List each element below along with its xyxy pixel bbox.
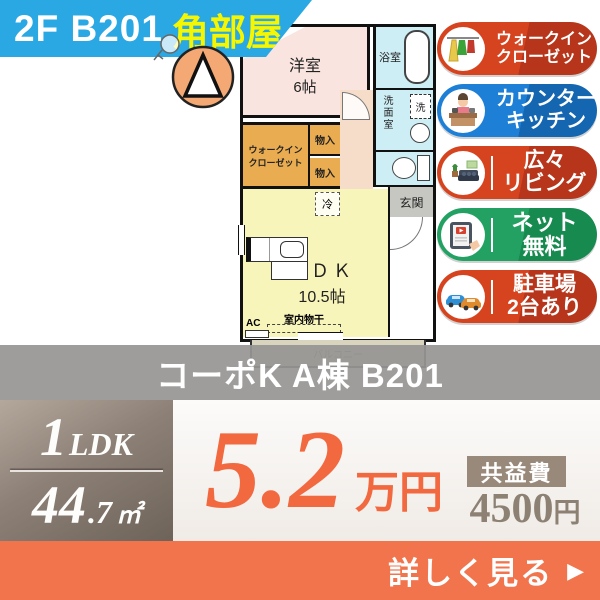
layout-count: 1 (40, 410, 67, 464)
rent-unit: 万円 (355, 471, 443, 515)
area-dec: .7 (88, 496, 112, 528)
badge-divider (491, 280, 493, 314)
free-internet-icon (441, 213, 485, 257)
badge-line1: ネット (498, 211, 591, 235)
badge-line2: 無料 (498, 235, 591, 259)
area-int: 44 (32, 478, 86, 532)
kitchen-counter-lower (271, 262, 308, 280)
details-button-label: 詳しく見る (388, 548, 553, 593)
badge-divider (491, 218, 493, 252)
counter-kitchen-icon (441, 89, 485, 133)
badge-spacious-living: 広々 リビング (437, 146, 597, 199)
fee-label-badge: 共益費 (467, 456, 566, 487)
layout-area-box: 1 LDK 44 .7 ㎡ (0, 400, 173, 541)
layout-type: LDK (69, 428, 133, 460)
wic-label-line2: クローゼット (248, 156, 302, 169)
listing-card: 2F B201 角部屋 洋室 6帖 浴室 洗面室 洗 (0, 0, 600, 600)
sink-icon (410, 123, 430, 143)
ldk-size: 10.5帖 (289, 283, 355, 307)
bathtub-icon (404, 30, 430, 84)
summary-strip: 1 LDK 44 .7 ㎡ 5.2 万円 共益費 4500円 (0, 400, 600, 541)
washer-space: 洗 (410, 94, 431, 119)
badge-line1: 駐車場 (498, 274, 591, 297)
badge-parking: 駐車場 2台あり (437, 270, 597, 323)
door-arc (390, 217, 423, 250)
ac-unit-icon (245, 330, 269, 338)
walk-in-closet-icon (441, 27, 485, 71)
spacious-living-icon (441, 151, 485, 195)
ac-label: AC (246, 318, 260, 329)
toilet-tank-icon (417, 155, 430, 181)
fridge-space: 冷 (315, 192, 340, 216)
fee-amount: 4500 (470, 486, 554, 532)
badge-line1: カウンター (496, 89, 596, 111)
fee-unit: 円 (554, 498, 581, 528)
arrow-right-icon: ▶ (567, 558, 584, 584)
storage-lower: 物入 (310, 158, 340, 189)
north-arrow-icon (170, 44, 236, 110)
parking-icon (441, 275, 485, 319)
room-entrance: 玄関 (388, 187, 433, 217)
kitchen-sink-icon (280, 241, 304, 258)
details-button[interactable]: 詳しく見る ▶ (0, 541, 600, 600)
storage-upper: 物入 (310, 122, 340, 156)
badge-line2: キッチン (496, 111, 596, 133)
property-title: コーポK A棟 B201 (156, 349, 444, 397)
window (238, 225, 245, 255)
rent-display: 5.2 万円 (178, 400, 470, 541)
room-toilet (373, 152, 433, 187)
room-washroom: 洗面室 洗 (373, 90, 433, 152)
room-walk-in-closet: ウォークイン クローゼット (243, 122, 310, 189)
toilet-icon (392, 157, 416, 179)
badge-walk-in-closet: ウォークイン クローゼット (437, 22, 597, 75)
floor-plan: 洋室 6帖 浴室 洗面室 洗 玄関 ウォークイン クローゼット 物入 (240, 24, 436, 342)
badge-line2: リビング (498, 173, 591, 196)
area-unit: ㎡ (116, 503, 141, 528)
room-western-size: 6帖 (293, 76, 316, 97)
fee-value: 4500円 (455, 488, 595, 530)
spec-divider (10, 470, 163, 472)
badge-line1: ウォークイン (496, 31, 592, 48)
badge-line1: 広々 (498, 150, 591, 173)
badge-counter-kitchen: カウンター キッチン (437, 84, 597, 137)
feature-badges: ウォークイン クローゼット カウンター キッチン (437, 22, 597, 332)
room-washroom-label: 洗面室 (379, 95, 394, 131)
badge-free-internet: ネット 無料 (437, 208, 597, 261)
floor-unit-label: 2F B201 (14, 8, 163, 50)
badge-divider (491, 156, 493, 190)
wic-label-line1: ウォークイン (248, 143, 302, 156)
room-western-label: 洋室 (289, 52, 321, 76)
room-bath-label: 浴室 (379, 49, 401, 65)
room-bath: 浴室 (373, 27, 433, 90)
door-arc (342, 92, 370, 120)
kitchen-counter-icon (246, 237, 308, 262)
badge-line2: クローゼット (496, 49, 592, 66)
badge-line2: 2台あり (498, 297, 591, 320)
title-bar: コーポK A棟 B201 (0, 345, 600, 400)
rent-value: 5.2 (205, 414, 345, 526)
